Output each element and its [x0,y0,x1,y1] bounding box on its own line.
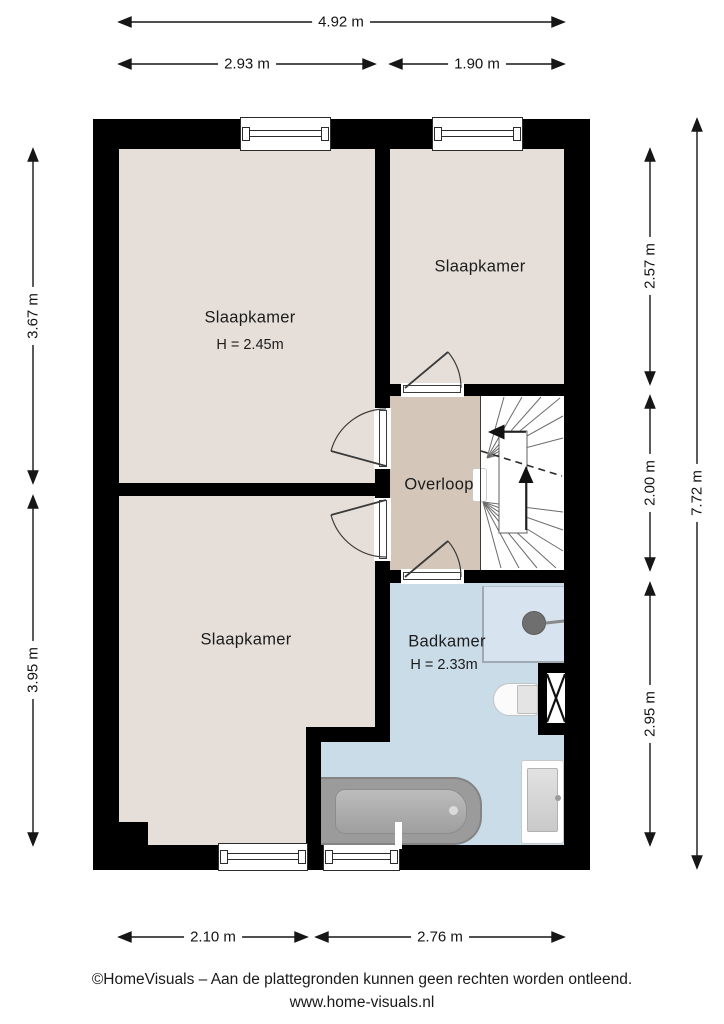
room-label-bedroom-top-left: Slaapkamer [204,309,295,328]
dimension-label: 7.72 m [689,464,706,522]
dimension-label: 1.90 m [448,56,506,73]
window-jamb [390,850,398,864]
sink-tap [555,795,561,801]
window-pane [227,853,299,860]
window-jamb [513,127,521,141]
dimension-label: 3.67 m [25,287,42,345]
dimension-label: 2.00 m [642,454,659,512]
window [240,117,331,151]
wall-jog [306,727,390,742]
window [432,117,523,151]
window-jamb [325,850,333,864]
door-leaf [403,572,461,580]
door-leaf [403,385,461,393]
bathtub-drain [449,806,458,815]
sink-basin [527,768,558,832]
dimension-label: 2.10 m [184,929,242,946]
dimension-label: 2.57 m [642,237,659,295]
room-label-bathroom: Badkamer [408,633,486,652]
dimension-label: 2.76 m [411,929,469,946]
bathtub-tap [395,822,402,849]
window [218,843,308,871]
footer-website: www.home-visuals.nl [0,991,724,1014]
window-jamb [220,850,228,864]
window-jamb [434,127,442,141]
dimension-label: 3.95 m [25,641,42,699]
window-pane [249,130,322,137]
window-jamb [242,127,250,141]
window-pane [441,130,514,137]
room-height-note: H = 2.45m [216,337,283,353]
toilet-tank [517,685,538,714]
door-leaf [379,500,387,559]
dimension-label: 2.95 m [642,685,659,743]
duct-shaft-box [547,673,565,723]
footer-copyright: ©HomeVisuals – Aan de plattegronden kunn… [0,968,724,991]
door-leaf [379,410,387,467]
wall-stub [306,742,321,845]
wall-corner-bump [119,822,148,845]
room-height-note: H = 2.33m [410,657,477,673]
window-pane [332,853,391,860]
room-label-landing: Overloop [404,476,473,495]
room-label-bedroom-top-right: Slaapkamer [434,258,525,277]
stairwell [480,396,564,570]
footer: ©HomeVisuals – Aan de plattegronden kunn… [0,968,724,1014]
stair-entry-threshold [472,468,487,502]
room-label-bedroom-bottom-left: Slaapkamer [200,631,291,650]
window-jamb [298,850,306,864]
window [323,843,400,871]
dimension-label: 4.92 m [312,14,370,31]
window-jamb [321,127,329,141]
shower-head [522,611,546,635]
dimension-label: 2.93 m [218,56,276,73]
